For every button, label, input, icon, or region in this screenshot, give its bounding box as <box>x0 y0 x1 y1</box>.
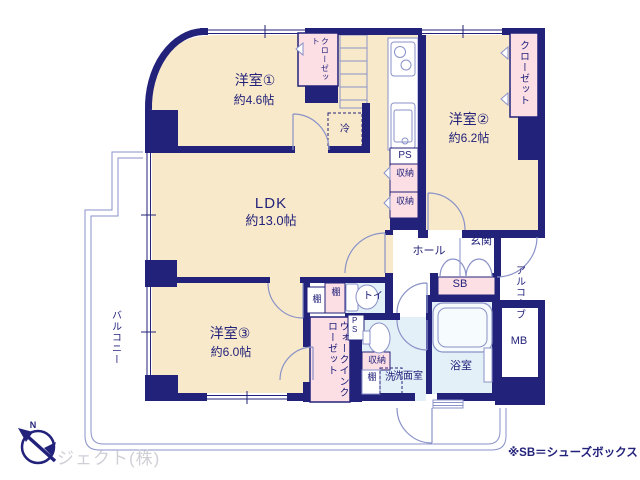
closet2-label: クローゼット <box>517 40 529 114</box>
shelf-label-2: 棚 <box>331 288 340 297</box>
storage-label-washroom: 収納 <box>368 356 386 365</box>
bathroom-label: 浴室 <box>450 361 472 373</box>
sb-label: SB <box>453 279 468 291</box>
washbasin-icon <box>368 323 390 353</box>
balcony-label: バルコニー <box>109 310 121 368</box>
ps-small-label: PS <box>352 317 361 335</box>
room-name-ldk: LDK <box>255 196 287 212</box>
genkan-label: 玄関 <box>470 236 492 248</box>
room-size-ldk: 約13.0帖 <box>245 214 296 228</box>
room-name-yoshitsu3: 洋室③ <box>210 326 251 341</box>
entrance-door-leaf <box>494 233 501 277</box>
compass-icon <box>18 428 56 463</box>
closet1-label: クローゼット <box>311 37 329 87</box>
shelf-label-1: 棚 <box>312 295 321 304</box>
footnote: ※SB＝シューズボックス <box>508 447 638 459</box>
room-size-yoshitsu3: 約6.0帖 <box>211 346 252 359</box>
bath-door-bar <box>484 348 492 382</box>
alcove-label: アルコーブ <box>513 265 525 323</box>
storage-label-2: 収納 <box>396 197 414 206</box>
fridge-label: 冷 <box>340 125 350 136</box>
floorplan-page: 洋室① 約4.6帖 洋室② 約6.2帖 LDK 約13.0帖 洋室③ 約6.0帖… <box>0 0 640 480</box>
room-size-yoshitsu2: 約6.2帖 <box>449 132 490 145</box>
room-name-yoshitsu2: 洋室② <box>449 112 490 127</box>
walk-in-closet-label: ウォークインクローゼット <box>312 321 348 401</box>
room-size-yoshitsu1: 約4.6帖 <box>234 94 275 107</box>
compass-n-label: N <box>30 421 37 430</box>
company-watermark: ジェクト(株) <box>57 450 160 468</box>
mb-label: MB <box>511 336 528 348</box>
washroom-label: 洗面室 <box>393 372 423 383</box>
storage-label-1: 収納 <box>396 169 414 178</box>
room-name-yoshitsu1: 洋室① <box>235 73 276 88</box>
hall-label: ホール <box>413 246 446 258</box>
bathtub-icon <box>433 303 492 352</box>
shelf-strip <box>340 35 367 108</box>
shelf-label-washroom: 棚 <box>367 373 376 382</box>
toilet-label: トイレ <box>363 292 393 303</box>
door-balcony-service <box>397 408 432 443</box>
washbasin-counter <box>363 331 370 344</box>
ps-label: PS <box>398 151 411 162</box>
washer-label: 洗 <box>385 373 395 384</box>
step-vent-strip <box>433 400 463 408</box>
